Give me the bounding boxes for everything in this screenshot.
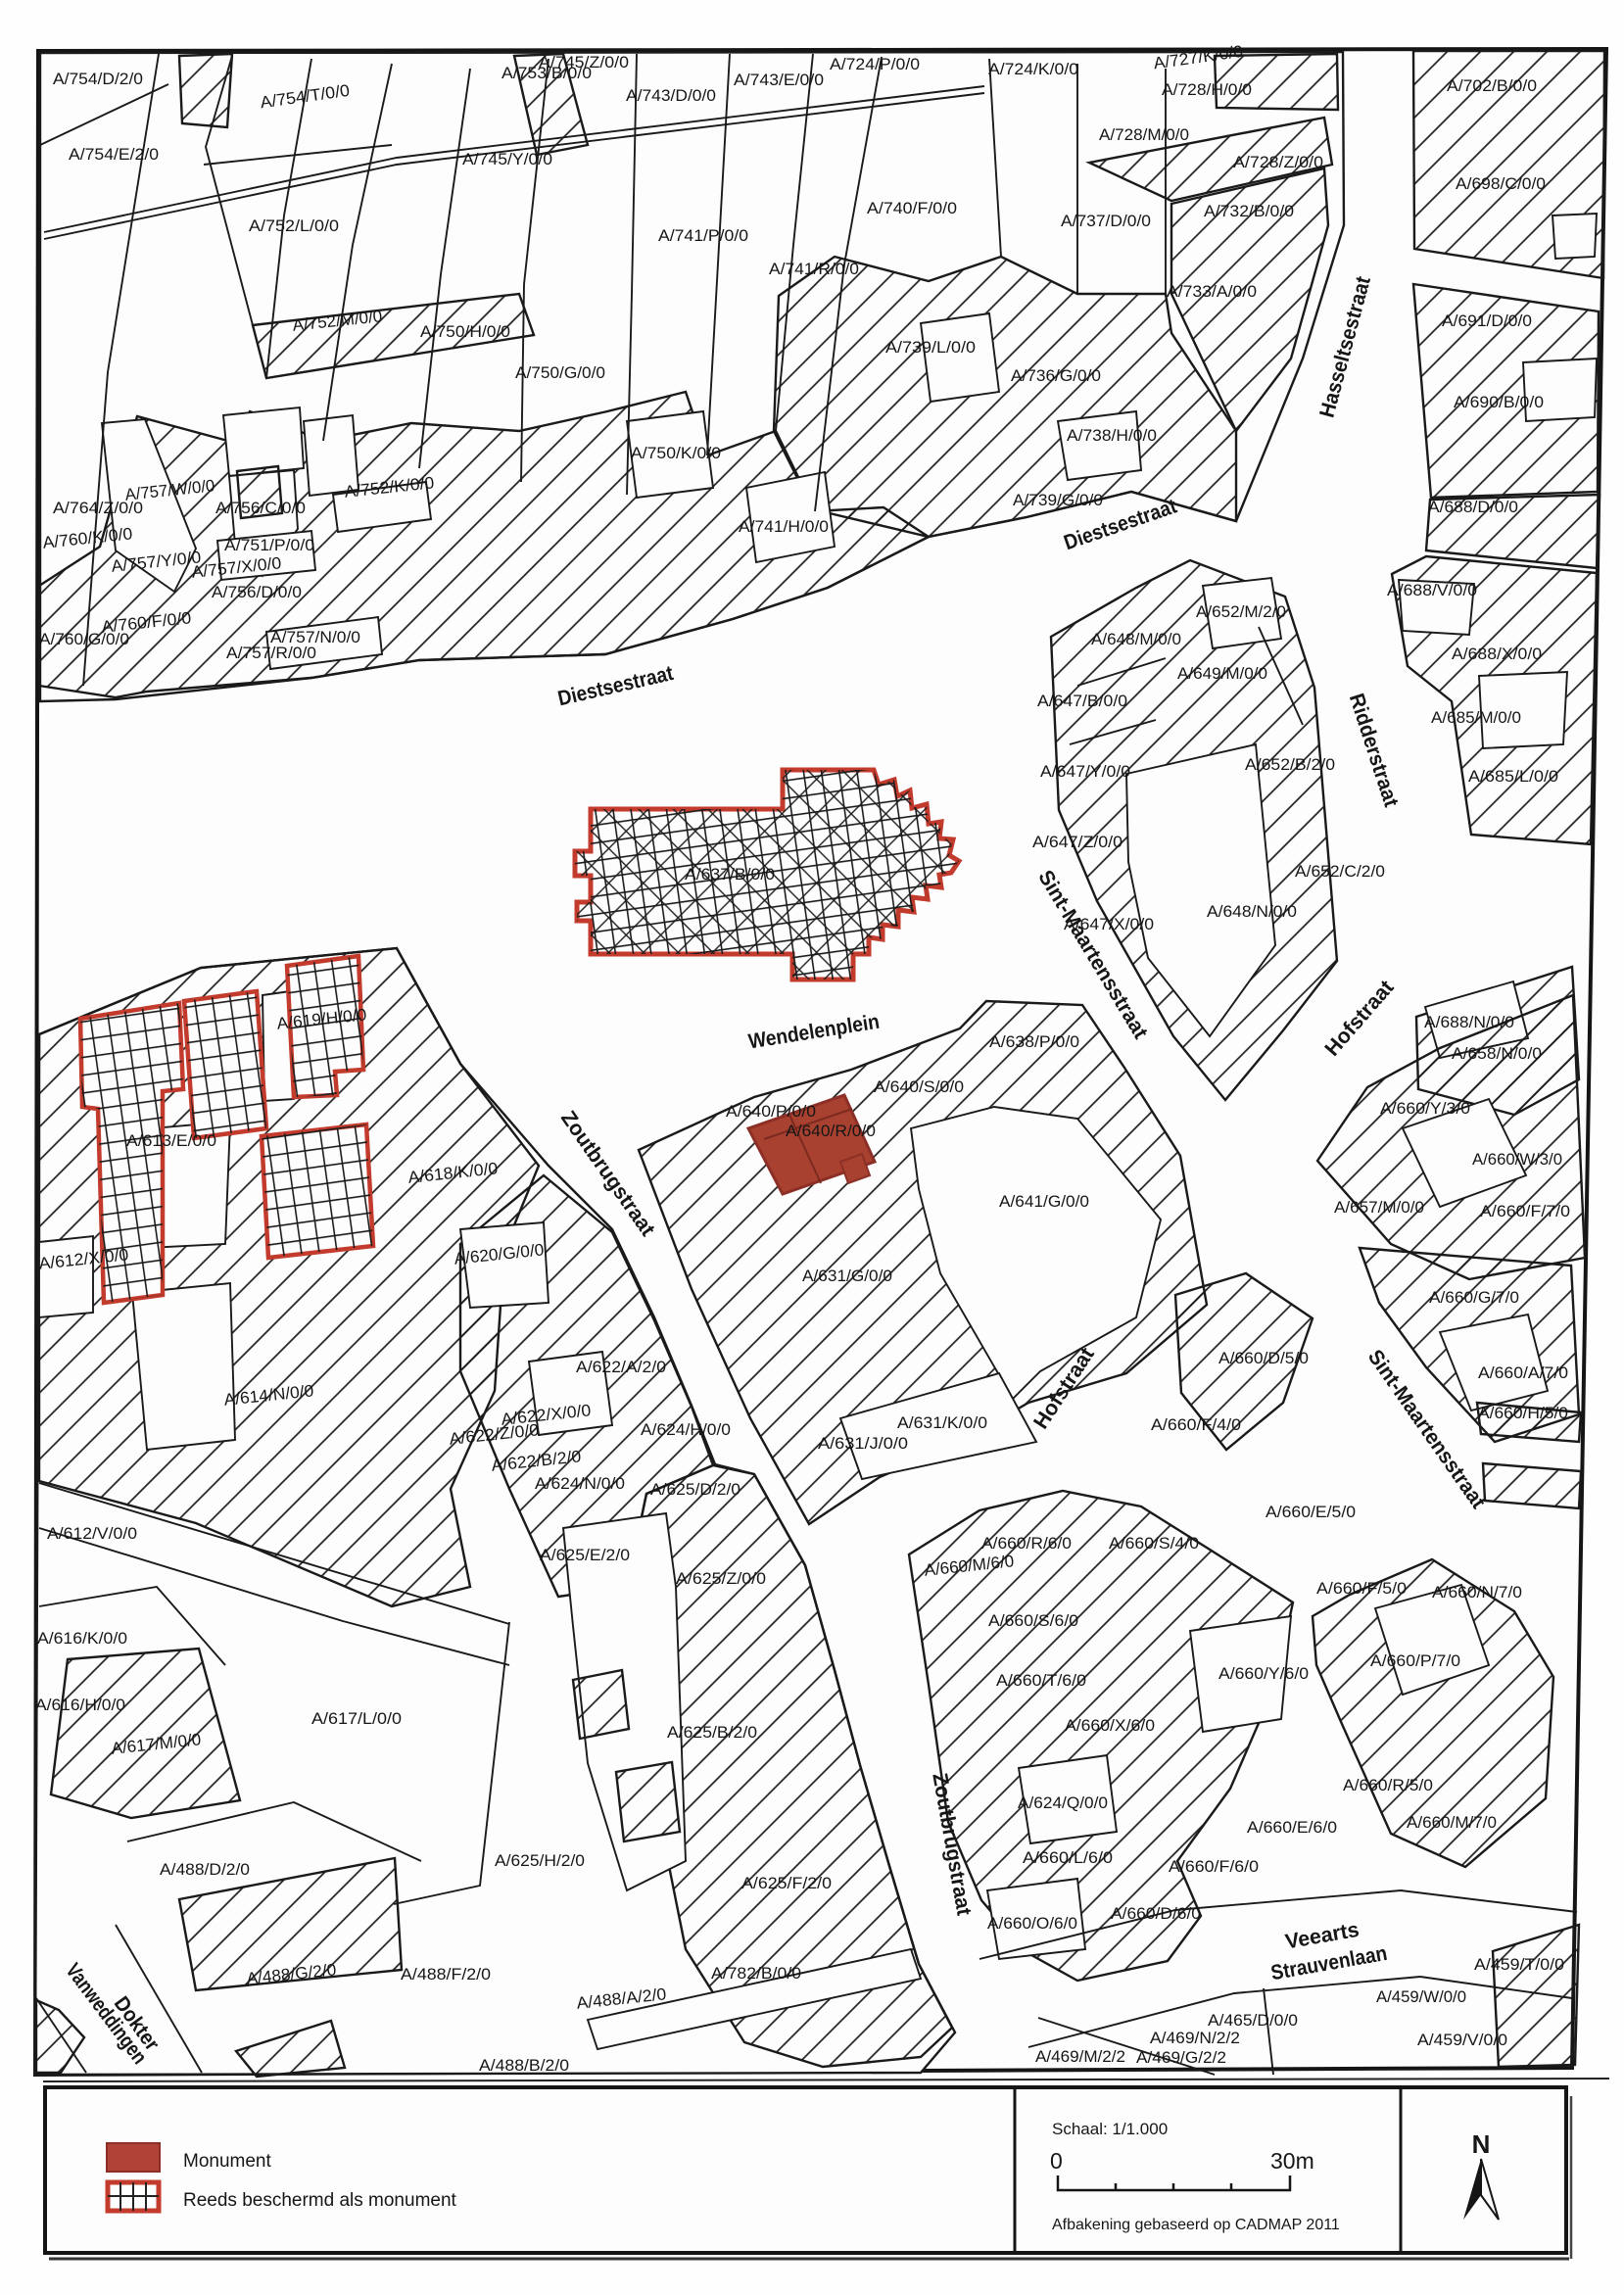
svg-text:A/736/G/0/0: A/736/G/0/0 xyxy=(1011,366,1101,385)
svg-text:A/631/G/0/0: A/631/G/0/0 xyxy=(802,1267,892,1285)
svg-text:A/625/F/2/0: A/625/F/2/0 xyxy=(741,1874,832,1892)
svg-text:0: 0 xyxy=(1050,2148,1063,2174)
svg-text:A/728/H/0/0: A/728/H/0/0 xyxy=(1162,80,1252,99)
svg-text:A/640/P/0/0: A/640/P/0/0 xyxy=(726,1102,816,1121)
svg-text:A/741/P/0/0: A/741/P/0/0 xyxy=(658,226,748,245)
svg-text:A/640/S/0/0: A/640/S/0/0 xyxy=(874,1077,964,1096)
svg-text:A/739/G/0/0: A/739/G/0/0 xyxy=(1013,491,1103,509)
svg-text:A/702/B/0/0: A/702/B/0/0 xyxy=(1447,76,1537,95)
svg-text:A/647/B/0/0: A/647/B/0/0 xyxy=(1037,692,1127,710)
svg-text:A/698/C/0/0: A/698/C/0/0 xyxy=(1456,174,1546,193)
svg-text:A/625/H/2/0: A/625/H/2/0 xyxy=(495,1851,585,1870)
svg-text:A/624/N/0/0: A/624/N/0/0 xyxy=(535,1474,625,1493)
svg-text:A/616/K/0/0: A/616/K/0/0 xyxy=(37,1629,127,1648)
svg-text:A/658/N/0/0: A/658/N/0/0 xyxy=(1452,1044,1542,1063)
svg-text:A/625/Z/0/0: A/625/Z/0/0 xyxy=(676,1569,766,1588)
svg-text:A/724/P/0/0: A/724/P/0/0 xyxy=(830,55,920,73)
svg-text:N: N xyxy=(1472,2129,1491,2159)
svg-text:Afbakening gebaseerd op CADMAP: Afbakening gebaseerd op CADMAP 2011 xyxy=(1052,2217,1340,2233)
svg-text:A/625/B/2/0: A/625/B/2/0 xyxy=(667,1723,757,1742)
svg-text:A/459/V/0/0: A/459/V/0/0 xyxy=(1417,2031,1507,2049)
svg-text:A/617/L/0/0: A/617/L/0/0 xyxy=(311,1709,402,1728)
svg-text:A/637/B/0/0: A/637/B/0/0 xyxy=(685,865,775,884)
svg-text:A/638/P/0/0: A/638/P/0/0 xyxy=(989,1032,1079,1051)
svg-text:A/657/M/0/0: A/657/M/0/0 xyxy=(1334,1198,1424,1217)
svg-text:A/756/D/0/0: A/756/D/0/0 xyxy=(212,583,302,601)
svg-text:A/652/C/2/0: A/652/C/2/0 xyxy=(1295,862,1385,881)
svg-text:A/757/R/0/0: A/757/R/0/0 xyxy=(226,644,316,662)
svg-text:A/459/T/0/0: A/459/T/0/0 xyxy=(1474,1955,1564,1974)
svg-text:A/685/L/0/0: A/685/L/0/0 xyxy=(1468,767,1558,786)
svg-text:A/469/G/2/2: A/469/G/2/2 xyxy=(1136,2048,1226,2067)
svg-text:A/739/L/0/0: A/739/L/0/0 xyxy=(885,338,976,357)
svg-text:A/660/R/5/0: A/660/R/5/0 xyxy=(1343,1776,1433,1794)
svg-text:A/745/Z/0/0: A/745/Z/0/0 xyxy=(539,53,629,72)
svg-text:A/743/E/0/0: A/743/E/0/0 xyxy=(734,71,824,89)
svg-text:A/660/F/7/0: A/660/F/7/0 xyxy=(1480,1202,1570,1220)
svg-text:A/622/A/2/0: A/622/A/2/0 xyxy=(576,1358,666,1376)
svg-text:A/733/A/0/0: A/733/A/0/0 xyxy=(1167,282,1257,301)
svg-text:A/660/A/7/0: A/660/A/7/0 xyxy=(1478,1363,1568,1382)
svg-text:A/760/G/0/0: A/760/G/0/0 xyxy=(39,630,129,648)
svg-text:A/660/Y/6/0: A/660/Y/6/0 xyxy=(1218,1664,1309,1683)
svg-text:A/660/R/6/0: A/660/R/6/0 xyxy=(981,1534,1072,1553)
svg-text:A/688/D/0/0: A/688/D/0/0 xyxy=(1428,498,1518,516)
svg-text:A/660/E/6/0: A/660/E/6/0 xyxy=(1247,1818,1337,1837)
svg-text:A/469/N/2/2: A/469/N/2/2 xyxy=(1150,2029,1240,2047)
svg-text:A/613/E/0/0: A/613/E/0/0 xyxy=(126,1131,216,1150)
svg-text:A/469/M/2/2: A/469/M/2/2 xyxy=(1035,2047,1125,2066)
svg-text:A/488/B/2/0: A/488/B/2/0 xyxy=(479,2056,569,2075)
svg-text:30m: 30m xyxy=(1270,2148,1314,2174)
svg-text:A/652/B/2/0: A/652/B/2/0 xyxy=(1245,755,1335,774)
svg-text:A/625/E/2/0: A/625/E/2/0 xyxy=(540,1546,630,1564)
svg-text:A/738/H/0/0: A/738/H/0/0 xyxy=(1067,426,1157,445)
svg-text:A/750/G/0/0: A/750/G/0/0 xyxy=(515,363,605,382)
svg-text:A/728/Z/0/0: A/728/Z/0/0 xyxy=(1233,153,1323,171)
svg-text:A/612/V/0/0: A/612/V/0/0 xyxy=(47,1524,137,1543)
svg-text:A/660/W/3/0: A/660/W/3/0 xyxy=(1472,1150,1562,1169)
svg-text:A/459/W/0/0: A/459/W/0/0 xyxy=(1376,1987,1466,2006)
svg-text:A/648/N/0/0: A/648/N/0/0 xyxy=(1207,902,1297,921)
svg-text:Schaal: 1/1.000: Schaal: 1/1.000 xyxy=(1052,2120,1168,2138)
svg-text:A/752/L/0/0: A/752/L/0/0 xyxy=(249,216,339,235)
svg-text:A/691/D/0/0: A/691/D/0/0 xyxy=(1442,311,1532,330)
svg-text:A/660/H/5/0: A/660/H/5/0 xyxy=(1478,1404,1568,1422)
svg-text:A/743/D/0/0: A/743/D/0/0 xyxy=(626,86,716,105)
svg-text:A/741/H/0/0: A/741/H/0/0 xyxy=(739,517,829,536)
svg-text:A/754/D/2/0: A/754/D/2/0 xyxy=(53,70,143,88)
svg-text:A/647/X/0/0: A/647/X/0/0 xyxy=(1064,915,1154,933)
svg-text:A/648/M/0/0: A/648/M/0/0 xyxy=(1091,630,1181,648)
svg-text:Monument: Monument xyxy=(183,2151,271,2172)
svg-text:A/660/D/6/0: A/660/D/6/0 xyxy=(1111,1904,1201,1923)
svg-text:A/465/D/0/0: A/465/D/0/0 xyxy=(1208,2011,1298,2030)
svg-text:A/688/V/0/0: A/688/V/0/0 xyxy=(1387,581,1477,599)
svg-text:A/660/N/7/0: A/660/N/7/0 xyxy=(1432,1583,1522,1602)
svg-text:A/690/B/0/0: A/690/B/0/0 xyxy=(1454,393,1544,411)
svg-text:A/764/Z/0/0: A/764/Z/0/0 xyxy=(53,499,143,517)
svg-text:A/660/G/7/0: A/660/G/7/0 xyxy=(1429,1288,1519,1307)
svg-text:A/782/B/0/0: A/782/B/0/0 xyxy=(711,1964,801,1983)
svg-text:A/660/L/6/0: A/660/L/6/0 xyxy=(1023,1848,1113,1867)
svg-text:A/660/E/5/0: A/660/E/5/0 xyxy=(1266,1503,1356,1521)
svg-text:A/741/R/0/0: A/741/R/0/0 xyxy=(769,260,859,278)
svg-text:A/652/M/2/0: A/652/M/2/0 xyxy=(1196,602,1286,621)
svg-text:A/750/H/0/0: A/750/H/0/0 xyxy=(420,322,510,341)
svg-text:A/660/F/6/0: A/660/F/6/0 xyxy=(1169,1857,1259,1876)
svg-text:A/740/F/0/0: A/740/F/0/0 xyxy=(867,199,957,217)
svg-text:A/750/K/0/0: A/750/K/0/0 xyxy=(631,444,721,462)
svg-text:A/488/F/2/0: A/488/F/2/0 xyxy=(401,1965,491,1984)
svg-text:A/660/X/6/0: A/660/X/6/0 xyxy=(1065,1716,1155,1735)
svg-text:A/624/H/0/0: A/624/H/0/0 xyxy=(641,1420,731,1439)
svg-text:A/660/O/6/0: A/660/O/6/0 xyxy=(987,1914,1077,1933)
svg-text:A/647/Y/0/0: A/647/Y/0/0 xyxy=(1040,762,1130,781)
svg-text:A/660/M/7/0: A/660/M/7/0 xyxy=(1407,1813,1497,1832)
svg-text:A/641/G/0/0: A/641/G/0/0 xyxy=(999,1192,1089,1211)
svg-text:A/625/D/2/0: A/625/D/2/0 xyxy=(650,1480,740,1499)
svg-text:A/756/C/0/0: A/756/C/0/0 xyxy=(215,499,306,517)
svg-text:A/688/N/0/0: A/688/N/0/0 xyxy=(1424,1013,1514,1031)
svg-text:A/660/F/4/0: A/660/F/4/0 xyxy=(1151,1415,1241,1434)
svg-text:A/660/T/6/0: A/660/T/6/0 xyxy=(996,1671,1086,1690)
svg-text:A/624/Q/0/0: A/624/Q/0/0 xyxy=(1018,1793,1108,1812)
svg-text:A/660/S/6/0: A/660/S/6/0 xyxy=(988,1611,1078,1630)
svg-text:A/649/M/0/0: A/649/M/0/0 xyxy=(1177,664,1267,683)
svg-text:A/647/Z/0/0: A/647/Z/0/0 xyxy=(1032,833,1122,851)
svg-text:A/660/F/5/0: A/660/F/5/0 xyxy=(1316,1579,1407,1598)
svg-text:A/616/H/0/0: A/616/H/0/0 xyxy=(35,1696,125,1714)
svg-text:A/660/S/4/0: A/660/S/4/0 xyxy=(1109,1534,1199,1553)
svg-text:A/737/D/0/0: A/737/D/0/0 xyxy=(1061,212,1151,230)
svg-text:A/732/B/0/0: A/732/B/0/0 xyxy=(1204,202,1294,220)
svg-text:A/660/Y/3/0: A/660/Y/3/0 xyxy=(1380,1099,1470,1118)
svg-text:A/751/P/0/0: A/751/P/0/0 xyxy=(224,536,314,554)
svg-text:A/488/D/2/0: A/488/D/2/0 xyxy=(160,1860,250,1879)
svg-text:A/660/D/5/0: A/660/D/5/0 xyxy=(1218,1349,1309,1367)
svg-text:A/724/K/0/0: A/724/K/0/0 xyxy=(988,60,1078,78)
svg-text:A/728/M/0/0: A/728/M/0/0 xyxy=(1099,125,1189,144)
svg-text:A/640/R/0/0: A/640/R/0/0 xyxy=(786,1122,876,1140)
svg-text:A/745/Y/0/0: A/745/Y/0/0 xyxy=(462,150,552,168)
svg-text:A/660/P/7/0: A/660/P/7/0 xyxy=(1370,1651,1460,1670)
svg-text:A/688/X/0/0: A/688/X/0/0 xyxy=(1452,645,1542,663)
svg-text:A/685/M/0/0: A/685/M/0/0 xyxy=(1431,708,1521,727)
svg-text:A/631/J/0/0: A/631/J/0/0 xyxy=(818,1434,908,1453)
svg-text:A/631/K/0/0: A/631/K/0/0 xyxy=(897,1413,987,1432)
svg-text:Reeds beschermd als monument: Reeds beschermd als monument xyxy=(183,2190,457,2211)
svg-text:A/754/E/2/0: A/754/E/2/0 xyxy=(69,145,159,164)
